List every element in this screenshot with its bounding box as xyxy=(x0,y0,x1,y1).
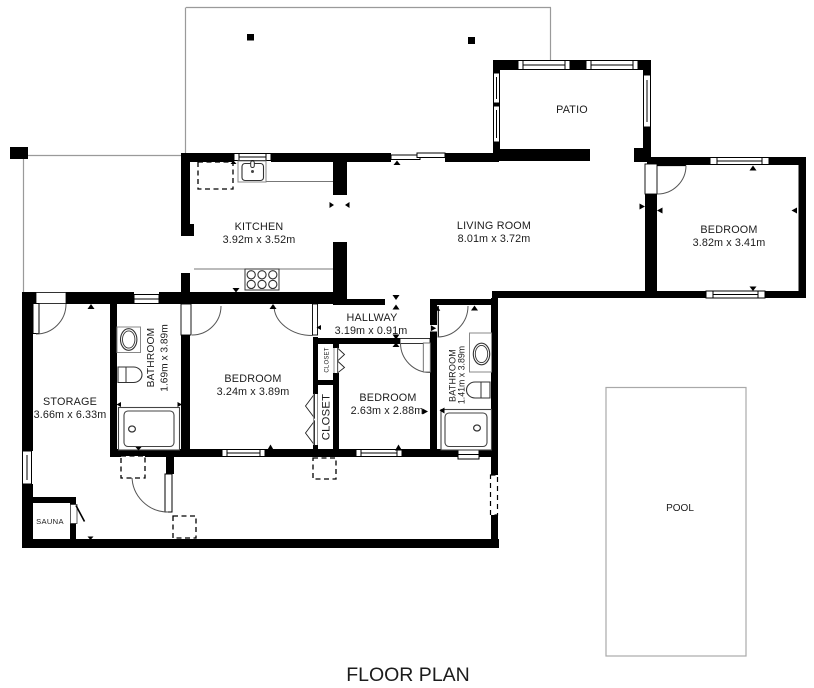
svg-text:3.66m x 6.33m: 3.66m x 6.33m xyxy=(34,409,107,421)
svg-text:STORAGE: STORAGE xyxy=(43,396,97,408)
svg-text:POOL: POOL xyxy=(666,503,694,514)
svg-text:LIVING ROOM: LIVING ROOM xyxy=(457,220,531,232)
svg-text:BEDROOM: BEDROOM xyxy=(224,373,281,385)
svg-text:FLOOR PLAN: FLOOR PLAN xyxy=(346,664,470,686)
svg-text:1.41m x 3.89m: 1.41m x 3.89m xyxy=(457,346,467,404)
svg-text:BATHROOM: BATHROOM xyxy=(146,328,157,388)
svg-text:KITCHEN: KITCHEN xyxy=(235,221,284,233)
svg-text:HALLWAY: HALLWAY xyxy=(347,312,398,324)
svg-text:BEDROOM: BEDROOM xyxy=(359,392,416,404)
svg-text:3.92m x 3.52m: 3.92m x 3.52m xyxy=(223,234,296,246)
svg-text:2.63m x 2.88m: 2.63m x 2.88m xyxy=(351,405,424,417)
svg-text:8.01m x 3.72m: 8.01m x 3.72m xyxy=(458,233,531,245)
svg-text:BEDROOM: BEDROOM xyxy=(700,224,757,236)
svg-text:3.24m x 3.89m: 3.24m x 3.89m xyxy=(217,386,290,398)
svg-text:SAUNA: SAUNA xyxy=(36,517,64,526)
svg-text:3.82m x 3.41m: 3.82m x 3.41m xyxy=(693,237,766,249)
svg-text:CLOSET: CLOSET xyxy=(321,394,333,441)
svg-text:CLOSET: CLOSET xyxy=(325,347,331,372)
svg-text:3.19m x 0.91m: 3.19m x 0.91m xyxy=(335,325,408,337)
svg-text:1.69m x 3.89m: 1.69m x 3.89m xyxy=(160,324,171,391)
svg-text:PATIO: PATIO xyxy=(556,104,588,116)
